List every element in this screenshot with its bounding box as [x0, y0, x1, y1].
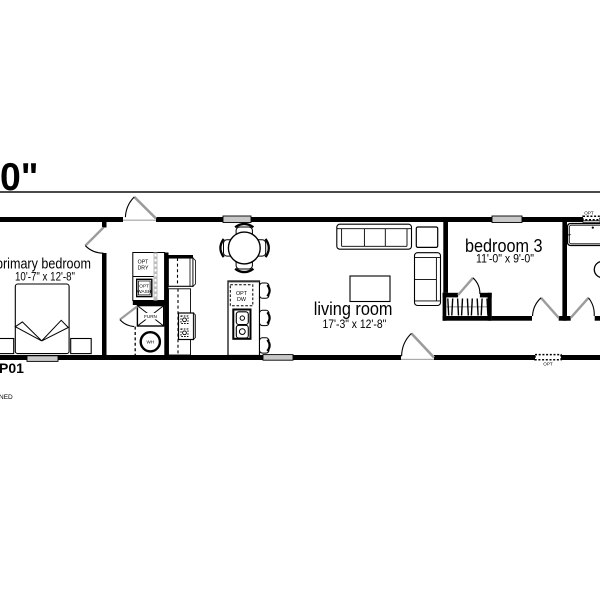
svg-text:OPT: OPT — [236, 291, 248, 297]
svg-text:DW: DW — [237, 297, 247, 303]
svg-text:P01: P01 — [0, 360, 24, 376]
svg-text:11'-0" x 9'-0": 11'-0" x 9'-0" — [476, 252, 534, 266]
svg-text:NED: NED — [0, 394, 13, 401]
svg-text:primary bedroom: primary bedroom — [0, 257, 91, 273]
svg-text:OPT: OPT — [139, 284, 149, 290]
svg-text:10'-7" x 12'-8": 10'-7" x 12'-8" — [15, 272, 75, 284]
svg-text:DRY: DRY — [138, 266, 149, 272]
svg-text:WASH: WASH — [137, 289, 152, 295]
svg-text:OPT: OPT — [584, 211, 594, 216]
svg-text:WH: WH — [146, 340, 154, 345]
svg-text:FURN: FURN — [144, 314, 157, 319]
svg-text:17'-3" x 12'-8": 17'-3" x 12'-8" — [323, 317, 387, 331]
svg-text:OPT: OPT — [543, 362, 553, 367]
